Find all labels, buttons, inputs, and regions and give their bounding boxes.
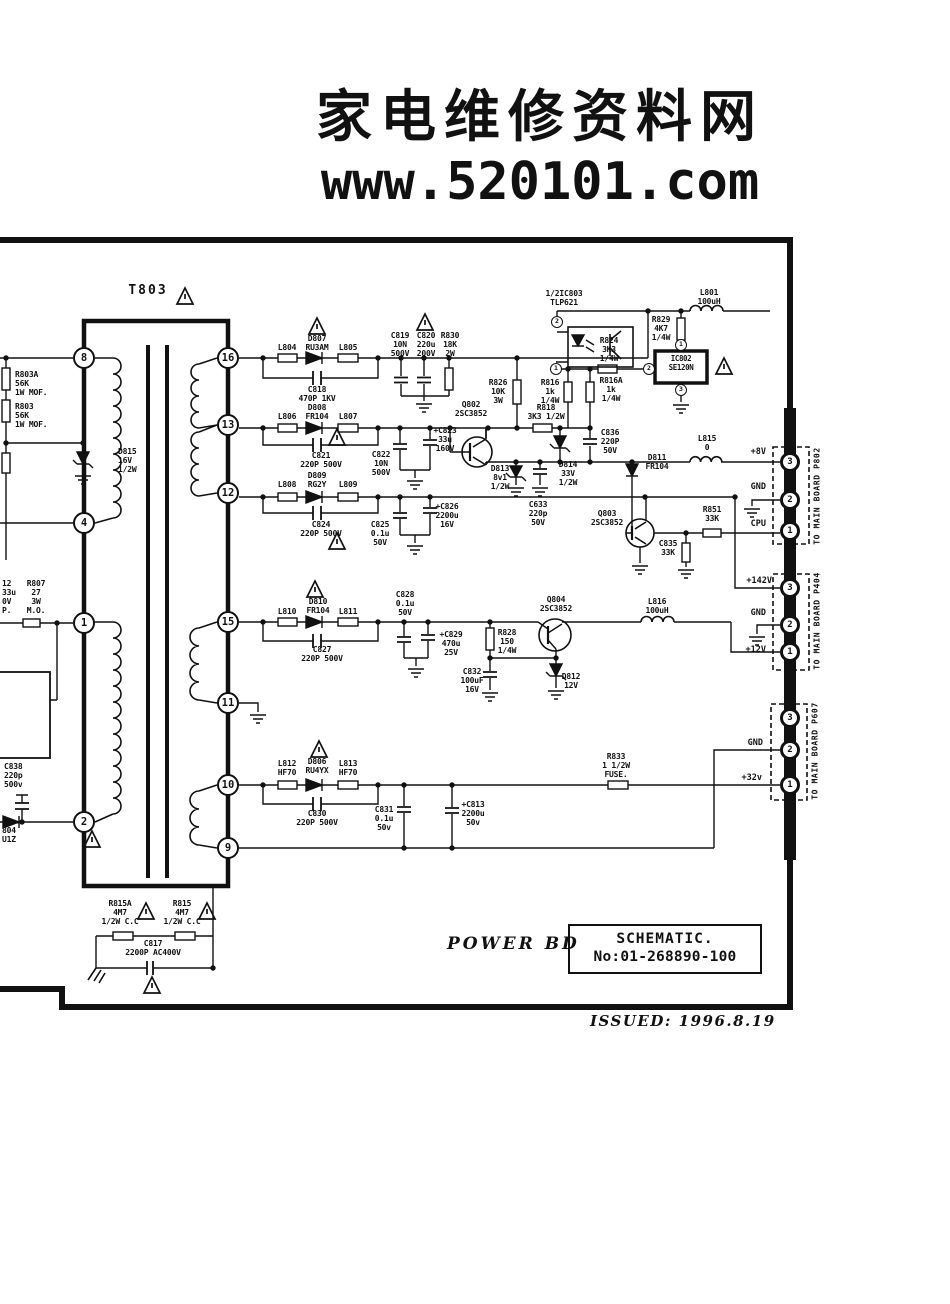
components-c823: +C823 33u 160V xyxy=(433,427,456,454)
connectors-p607-pin3: 3 xyxy=(780,708,800,728)
components-c633: C633 220p 50V xyxy=(529,501,547,528)
transformer-pins-p11: 11 xyxy=(217,692,239,714)
schematic-box-title: SCHEMATIC. xyxy=(570,930,760,948)
ic-reg_pin3: 3 xyxy=(675,384,687,396)
components-d815: D815 16V 1/2W xyxy=(118,448,136,475)
components-r803a: R803A 56K 1W MOF. xyxy=(15,371,47,398)
components-c828: C828 0.1u 50V xyxy=(396,591,414,618)
ic-opto_name: 1/2IC803 TLP621 xyxy=(546,290,583,308)
connectors-p802-name: TO MAIN BOARD P802 xyxy=(813,447,822,545)
connectors-p802-pin1: 1 xyxy=(780,521,800,541)
components-r833: R833 1 1/2W FUSE. xyxy=(602,753,630,780)
components-r807: R807 27 3W M.O. xyxy=(27,580,45,616)
components-c826: +C826 2200u 16V xyxy=(435,503,458,530)
ic-opto_pin_top: 2 xyxy=(551,316,563,328)
components-c831: C831 0.1u 50v xyxy=(375,806,393,833)
ic-reg_pin1: 1 xyxy=(675,339,687,351)
components-d813: D813 8v1 1/2W xyxy=(491,465,509,492)
transformer-pins-p12: 12 xyxy=(217,482,239,504)
components-l809: L809 xyxy=(339,481,357,490)
connectors-p607-pin2: 2 xyxy=(780,740,800,760)
connectors-p404-pin1: 1 xyxy=(780,642,800,662)
components-q804: Q804 2SC3852 xyxy=(540,596,572,614)
components-l811: L811 xyxy=(339,608,357,617)
components-d807: D807 RU3AM xyxy=(305,335,328,353)
components-d812: D812 12V xyxy=(562,673,580,691)
transformer-name: T803 xyxy=(128,284,167,299)
ic-reg_pin2: 2 xyxy=(643,363,655,375)
transformer-pins-p16: 16 xyxy=(217,347,239,369)
components-l801: L801 100uH xyxy=(697,289,720,307)
components-d811: D811 FR104 xyxy=(645,454,668,472)
issued-date: ISSUED: 1996.8.19 xyxy=(590,1012,776,1030)
components-c818: C818 470P 1KV xyxy=(299,386,336,404)
components-c813: +C813 2200u 50v xyxy=(461,801,484,828)
components-l804: L804 xyxy=(278,344,296,353)
connectors-p404-pin3: 3 xyxy=(780,578,800,598)
connectors-p802-sig3: +8V xyxy=(751,447,766,457)
components-c829: +C829 470u 25V xyxy=(439,631,462,658)
components-r815: R815 4M7 1/2W C.C xyxy=(164,900,201,927)
connectors-p802-pin2: 2 xyxy=(780,490,800,510)
components-r816a: R816A 1k 1/4W xyxy=(599,377,622,404)
components-r826: R826 10K 3W xyxy=(489,379,507,406)
connectors-p607-name: TO MAIN BOARD P607 xyxy=(811,702,820,800)
components-c830: C830 220P 500V xyxy=(296,810,338,828)
connectors-p802-pin3: 3 xyxy=(780,452,800,472)
connectors-p607-sig1: +32v xyxy=(742,773,762,783)
components-l815: L815 0 xyxy=(698,435,716,453)
components-l816: L816 100uH xyxy=(645,598,668,616)
components-l806: L806 xyxy=(278,413,296,422)
components-l808: L808 xyxy=(278,481,296,490)
transformer-pins-p4: 4 xyxy=(73,512,95,534)
schematic-page: 家电维修资料网 www.520101.com xyxy=(0,0,950,1304)
components-d806: D806 RU4YX xyxy=(305,758,328,776)
connectors-p607-sig2: GND xyxy=(748,738,763,748)
components-c836: C836 220P 50V xyxy=(601,429,619,456)
transformer-pins-p8: 8 xyxy=(73,347,95,369)
schematic-number-box: SCHEMATIC. No:01-268890-100 xyxy=(568,924,762,974)
transformer-pins-p15: 15 xyxy=(217,611,239,633)
components-c819: C819 10N 500V xyxy=(391,332,409,359)
components-l807: L807 xyxy=(339,413,357,422)
components-l810: L810 xyxy=(278,608,296,617)
ic-reg_name: IC802 SE120N xyxy=(669,354,694,373)
ic-opto_pin_bot: 1 xyxy=(550,363,562,375)
components-r829: R829 4K7 1/4W xyxy=(652,316,670,343)
components-d804: 804 U1Z xyxy=(2,827,16,845)
components-r851: R851 33K xyxy=(703,506,721,524)
components-c824: C824 220P 500V xyxy=(300,521,342,539)
transformer-pins-p1: 1 xyxy=(73,612,95,634)
connectors-p802-sig1: CPU xyxy=(751,519,766,529)
components-c827: C827 220P 500V xyxy=(301,646,343,664)
components-r816: R816 1k 1/4W xyxy=(541,379,559,406)
components-r830: R830 18K 2W xyxy=(441,332,459,359)
components-r824: R824 3K3 1/4W xyxy=(600,337,618,364)
components-q803: Q803 2SC3852 xyxy=(591,510,623,528)
components-c822: C822 10N 500V xyxy=(372,451,390,478)
components-d810: D810 FR104 xyxy=(306,598,329,616)
components-r815a: R815A 4M7 1/2W C.C xyxy=(102,900,139,927)
components-c825: C825 0.1u 50V xyxy=(371,521,389,548)
connectors-p404-sig2: GND xyxy=(751,608,766,618)
components-c835: C835 33K xyxy=(659,540,677,558)
components-l805: L805 xyxy=(339,344,357,353)
transformer-pins-p13: 13 xyxy=(217,414,239,436)
components-c832: C832 100uF 16V xyxy=(460,668,483,695)
components-c820: C820 220u 200V xyxy=(417,332,435,359)
connectors-p404-sig3: +142V xyxy=(746,576,772,586)
label-overlay: R803A 56K 1W MOF.R803 56K 1W MOF.D815 16… xyxy=(0,0,950,1304)
components-c817: C817 2200P AC400V xyxy=(125,940,180,958)
components-l813: L813 HF70 xyxy=(339,760,357,778)
components-d814: D814 33V 1/2W xyxy=(559,461,577,488)
connectors-p802-sig2: GND xyxy=(751,482,766,492)
components-d809: D809 RG2Y xyxy=(308,472,326,490)
components-r803: R803 56K 1W MOF. xyxy=(15,403,47,430)
components-r828: R828 150 1/4W xyxy=(498,629,516,656)
connectors-p404-name: TO MAIN BOARD P404 xyxy=(813,572,822,670)
connectors-p607-pin1: 1 xyxy=(780,775,800,795)
components-l812: L812 HF70 xyxy=(278,760,296,778)
transformer-pins-p2: 2 xyxy=(73,811,95,833)
connectors-p404-pin2: 2 xyxy=(780,615,800,635)
board-title: POWER BD xyxy=(447,934,580,954)
transformer-pins-p10: 10 xyxy=(217,774,239,796)
components-q802: Q802 2SC3852 xyxy=(455,401,487,419)
schematic-number: No:01-268890-100 xyxy=(570,948,760,966)
components-c838: C838 220p 500v xyxy=(4,763,22,790)
components-d808: D808 FR104 xyxy=(305,404,328,422)
connectors-p404-sig1: +12V xyxy=(746,645,766,655)
components-r818: R818 3K3 1/2W xyxy=(528,404,565,422)
components-c812: 12 33u 0V P. xyxy=(2,580,16,616)
transformer-pins-p9: 9 xyxy=(217,837,239,859)
components-c821: C821 220P 500V xyxy=(300,452,342,470)
